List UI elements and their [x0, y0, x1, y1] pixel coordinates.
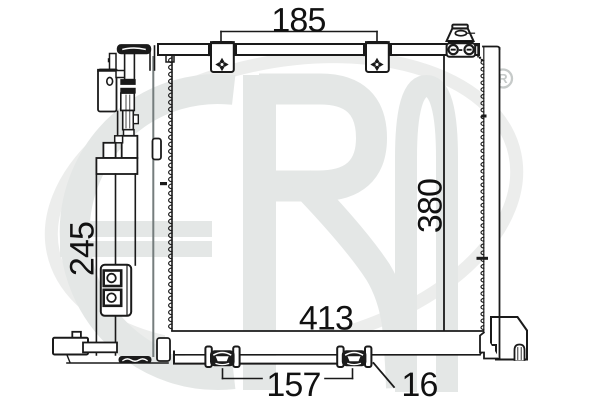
svg-text:16: 16: [401, 366, 437, 400]
svg-text:380: 380: [412, 179, 450, 233]
svg-text:157: 157: [266, 366, 320, 400]
svg-text:245: 245: [64, 222, 102, 276]
svg-text:185: 185: [271, 1, 325, 39]
svg-text:413: 413: [299, 299, 353, 337]
